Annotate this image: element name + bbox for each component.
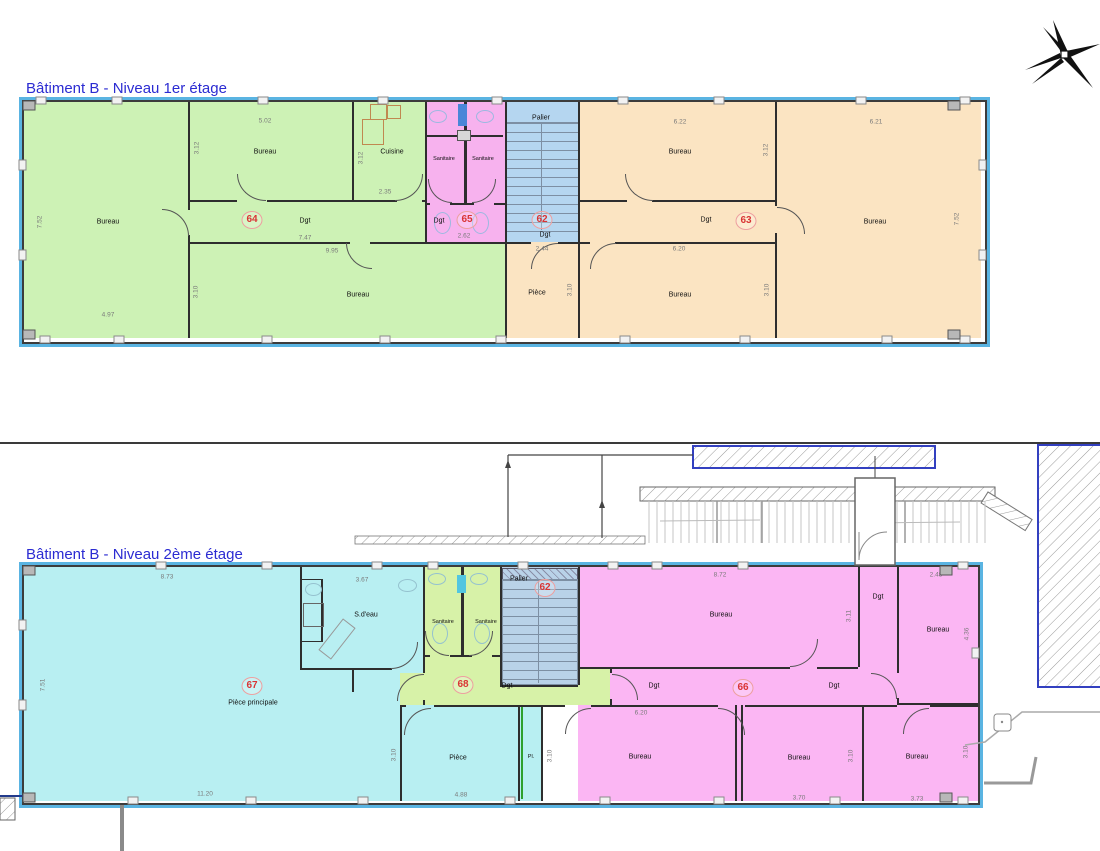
kitchen-counter-icon xyxy=(387,105,401,119)
room-label: Bureau xyxy=(629,754,652,761)
dimension-label: 8.72 xyxy=(714,572,727,579)
placard-green-line xyxy=(521,707,523,799)
wall xyxy=(930,705,978,707)
sink-icon xyxy=(429,110,447,123)
wall xyxy=(450,203,474,205)
neighbour-hatched-strip xyxy=(693,446,935,468)
room-label: Sanitaire xyxy=(433,156,455,162)
wall xyxy=(652,200,775,202)
dimension-label: 5.02 xyxy=(259,118,272,125)
wall xyxy=(817,667,858,669)
dimension-label: 3.10 xyxy=(764,284,771,297)
wall xyxy=(500,567,502,685)
room-number-badge: 65 xyxy=(457,211,478,229)
wall xyxy=(423,567,425,673)
room-label: Sanitaire xyxy=(432,619,454,625)
dimension-label: 8.73 xyxy=(161,574,174,581)
sink-icon xyxy=(398,579,417,592)
dimension-label: 6.20 xyxy=(635,710,648,717)
corridor-label: Dgt xyxy=(300,218,311,225)
sink-icon xyxy=(428,573,446,585)
corridor-label: Dgt xyxy=(649,683,660,690)
wall xyxy=(541,705,543,801)
dimension-label: 3.70 xyxy=(793,795,806,802)
wall xyxy=(610,667,612,673)
wall xyxy=(578,200,627,202)
room-label: Palier xyxy=(532,115,550,122)
dimension-label: 2.35 xyxy=(379,189,392,196)
dimension-label: 9.95 xyxy=(326,248,339,255)
wall xyxy=(494,203,505,205)
kitchen-counter-icon xyxy=(362,119,384,145)
shaft-outline xyxy=(855,478,895,565)
wall xyxy=(505,242,507,338)
wall xyxy=(578,667,610,669)
room-label: Bureau xyxy=(927,627,950,634)
north-arrow-icon xyxy=(1025,20,1100,88)
corridor-label: Dgt xyxy=(502,683,513,690)
retaining-wall-band xyxy=(640,487,995,501)
room-label: Sanitaire xyxy=(475,619,497,625)
wall xyxy=(578,242,580,338)
dimension-label: 4.36 xyxy=(964,628,971,641)
wall xyxy=(862,705,864,801)
cistern-icon xyxy=(457,575,466,593)
wall xyxy=(300,579,323,580)
wall xyxy=(897,567,899,673)
dimension-label: 2.48 xyxy=(930,572,943,579)
retaining-wall-band-left xyxy=(355,536,645,544)
wall xyxy=(745,705,897,707)
wall xyxy=(300,668,392,670)
wall xyxy=(267,200,397,202)
room-bureau-c xyxy=(188,242,505,338)
corridor-label: Dgt xyxy=(873,594,884,601)
dimension-label: 6.22 xyxy=(674,119,687,126)
room-label: Pl. xyxy=(528,754,534,760)
dimension-label: 7.51 xyxy=(40,679,47,692)
sink-icon xyxy=(470,573,488,585)
wall xyxy=(188,235,190,338)
room-label: Bureau xyxy=(906,754,929,761)
room-label: Cuisine xyxy=(380,149,403,156)
dimension-label: 3.10 xyxy=(547,750,554,763)
dimension-label: 3.10 xyxy=(567,284,574,297)
room-label: Bureau xyxy=(788,755,811,762)
dimension-label: 4.97 xyxy=(102,312,115,319)
toilet-icon xyxy=(432,623,448,644)
kitchen-counter-icon xyxy=(370,104,387,120)
dimension-label: 3.73 xyxy=(911,796,924,803)
room-label: Palier xyxy=(510,576,528,583)
site-boundary-line xyxy=(965,712,1100,745)
room-label: Bureau xyxy=(669,149,692,156)
corridor-label: Dgt xyxy=(829,683,840,690)
wall xyxy=(558,242,590,244)
dimension-label: 3.67 xyxy=(356,577,369,584)
duct-box xyxy=(457,130,471,141)
retaining-wall-band-slanted xyxy=(981,492,1032,531)
cabinet-icon xyxy=(303,603,324,627)
sink-icon xyxy=(476,110,494,123)
site-marker-box xyxy=(994,714,1011,731)
room-number-badge: 64 xyxy=(242,211,263,229)
door-arc xyxy=(565,708,591,734)
plan2-building-outline: 67 Pièce principale S.d'eau Sanitaire Sa… xyxy=(22,565,980,805)
survey-arrow xyxy=(599,500,605,508)
dimension-label: 2.62 xyxy=(458,233,471,240)
dimension-label: 3.10 xyxy=(963,746,970,759)
room-number-badge: 63 xyxy=(736,212,757,230)
wall xyxy=(578,102,580,242)
door-arc xyxy=(859,532,887,560)
wall xyxy=(741,705,743,801)
wall xyxy=(610,667,790,669)
dimension-label: 11.20 xyxy=(197,791,213,798)
dimension-label: 7.52 xyxy=(37,216,44,229)
fence-rail xyxy=(660,520,760,521)
corridor-label: Dgt xyxy=(540,232,551,239)
wall xyxy=(615,242,775,244)
room-number-badge: 62 xyxy=(535,579,556,597)
wall xyxy=(188,200,237,202)
rooms-pink-zone xyxy=(578,567,978,801)
corridor-dgt-68-ext xyxy=(578,667,610,705)
room-label: Bureau xyxy=(254,149,277,156)
toilet-icon xyxy=(474,623,490,644)
wall xyxy=(775,233,777,338)
room-label: Pièce principale xyxy=(228,700,277,707)
room-number-badge: 62 xyxy=(532,211,553,229)
room-label: Bureau xyxy=(864,219,887,226)
site-marker-dot xyxy=(1001,721,1003,723)
wall xyxy=(492,655,500,657)
wall xyxy=(858,567,860,667)
dimension-label: 7.52 xyxy=(954,213,961,226)
wall xyxy=(518,705,520,801)
wall xyxy=(300,567,302,668)
room-label: Bureau xyxy=(347,292,370,299)
room-label: Bureau xyxy=(669,292,692,299)
room-label: S.d'eau xyxy=(354,612,378,619)
room-number-badge: 67 xyxy=(242,677,263,695)
wall xyxy=(591,705,718,707)
plan1-building-outline: Bureau Bureau Cuisine Sanitaire Sanitair… xyxy=(22,100,987,344)
room-label: Pièce xyxy=(449,755,467,762)
room-label: Bureau xyxy=(710,612,733,619)
room-label: Bureau xyxy=(97,219,120,226)
room-label: Sanitaire xyxy=(472,156,494,162)
dimension-label: 6.20 xyxy=(673,246,686,253)
floorplan-sheet: Bâtiment B - Niveau 1er étage xyxy=(0,0,1100,851)
dimension-label: 3.12 xyxy=(194,142,201,155)
fence-hatch xyxy=(645,501,990,543)
corridor-label: Dgt xyxy=(434,218,445,225)
dimension-label: 3.10 xyxy=(848,750,855,763)
dimension-label: 2.44 xyxy=(536,246,549,253)
wall xyxy=(775,102,777,206)
plan2-title: Bâtiment B - Niveau 2ème étage xyxy=(26,546,243,563)
dimension-label: 7.47 xyxy=(299,235,312,242)
wall xyxy=(425,102,427,242)
wall xyxy=(423,655,430,657)
dimension-label: 3.10 xyxy=(391,749,398,762)
room-number-badge: 68 xyxy=(453,676,474,694)
dimension-label: 4.88 xyxy=(455,792,468,799)
corridor-label: Dgt xyxy=(701,217,712,224)
site-hatch-stub xyxy=(0,798,15,820)
dimension-label: 3.12 xyxy=(763,144,770,157)
wall xyxy=(352,668,354,692)
dimension-label: 3.12 xyxy=(358,152,365,165)
dimension-label: 6.21 xyxy=(870,119,883,126)
dimension-label: 3.10 xyxy=(193,286,200,299)
fence-rail xyxy=(870,522,960,523)
toilet-icon xyxy=(305,583,322,596)
survey-arrow xyxy=(505,460,511,468)
room-label: Pièce xyxy=(528,290,546,297)
dimension-label: 3.11 xyxy=(846,610,853,622)
room-number-badge: 66 xyxy=(733,679,754,697)
site-wall-line xyxy=(984,757,1036,783)
wall xyxy=(425,203,430,205)
neighbour-hatched-block xyxy=(1038,445,1100,687)
wall xyxy=(352,102,354,200)
wall xyxy=(188,102,190,210)
wall xyxy=(188,242,350,244)
wall xyxy=(434,705,565,707)
cistern-icon xyxy=(458,104,467,126)
wall xyxy=(300,641,323,642)
wall xyxy=(505,102,507,242)
plan1-title: Bâtiment B - Niveau 1er étage xyxy=(26,80,227,97)
wall xyxy=(400,705,402,801)
